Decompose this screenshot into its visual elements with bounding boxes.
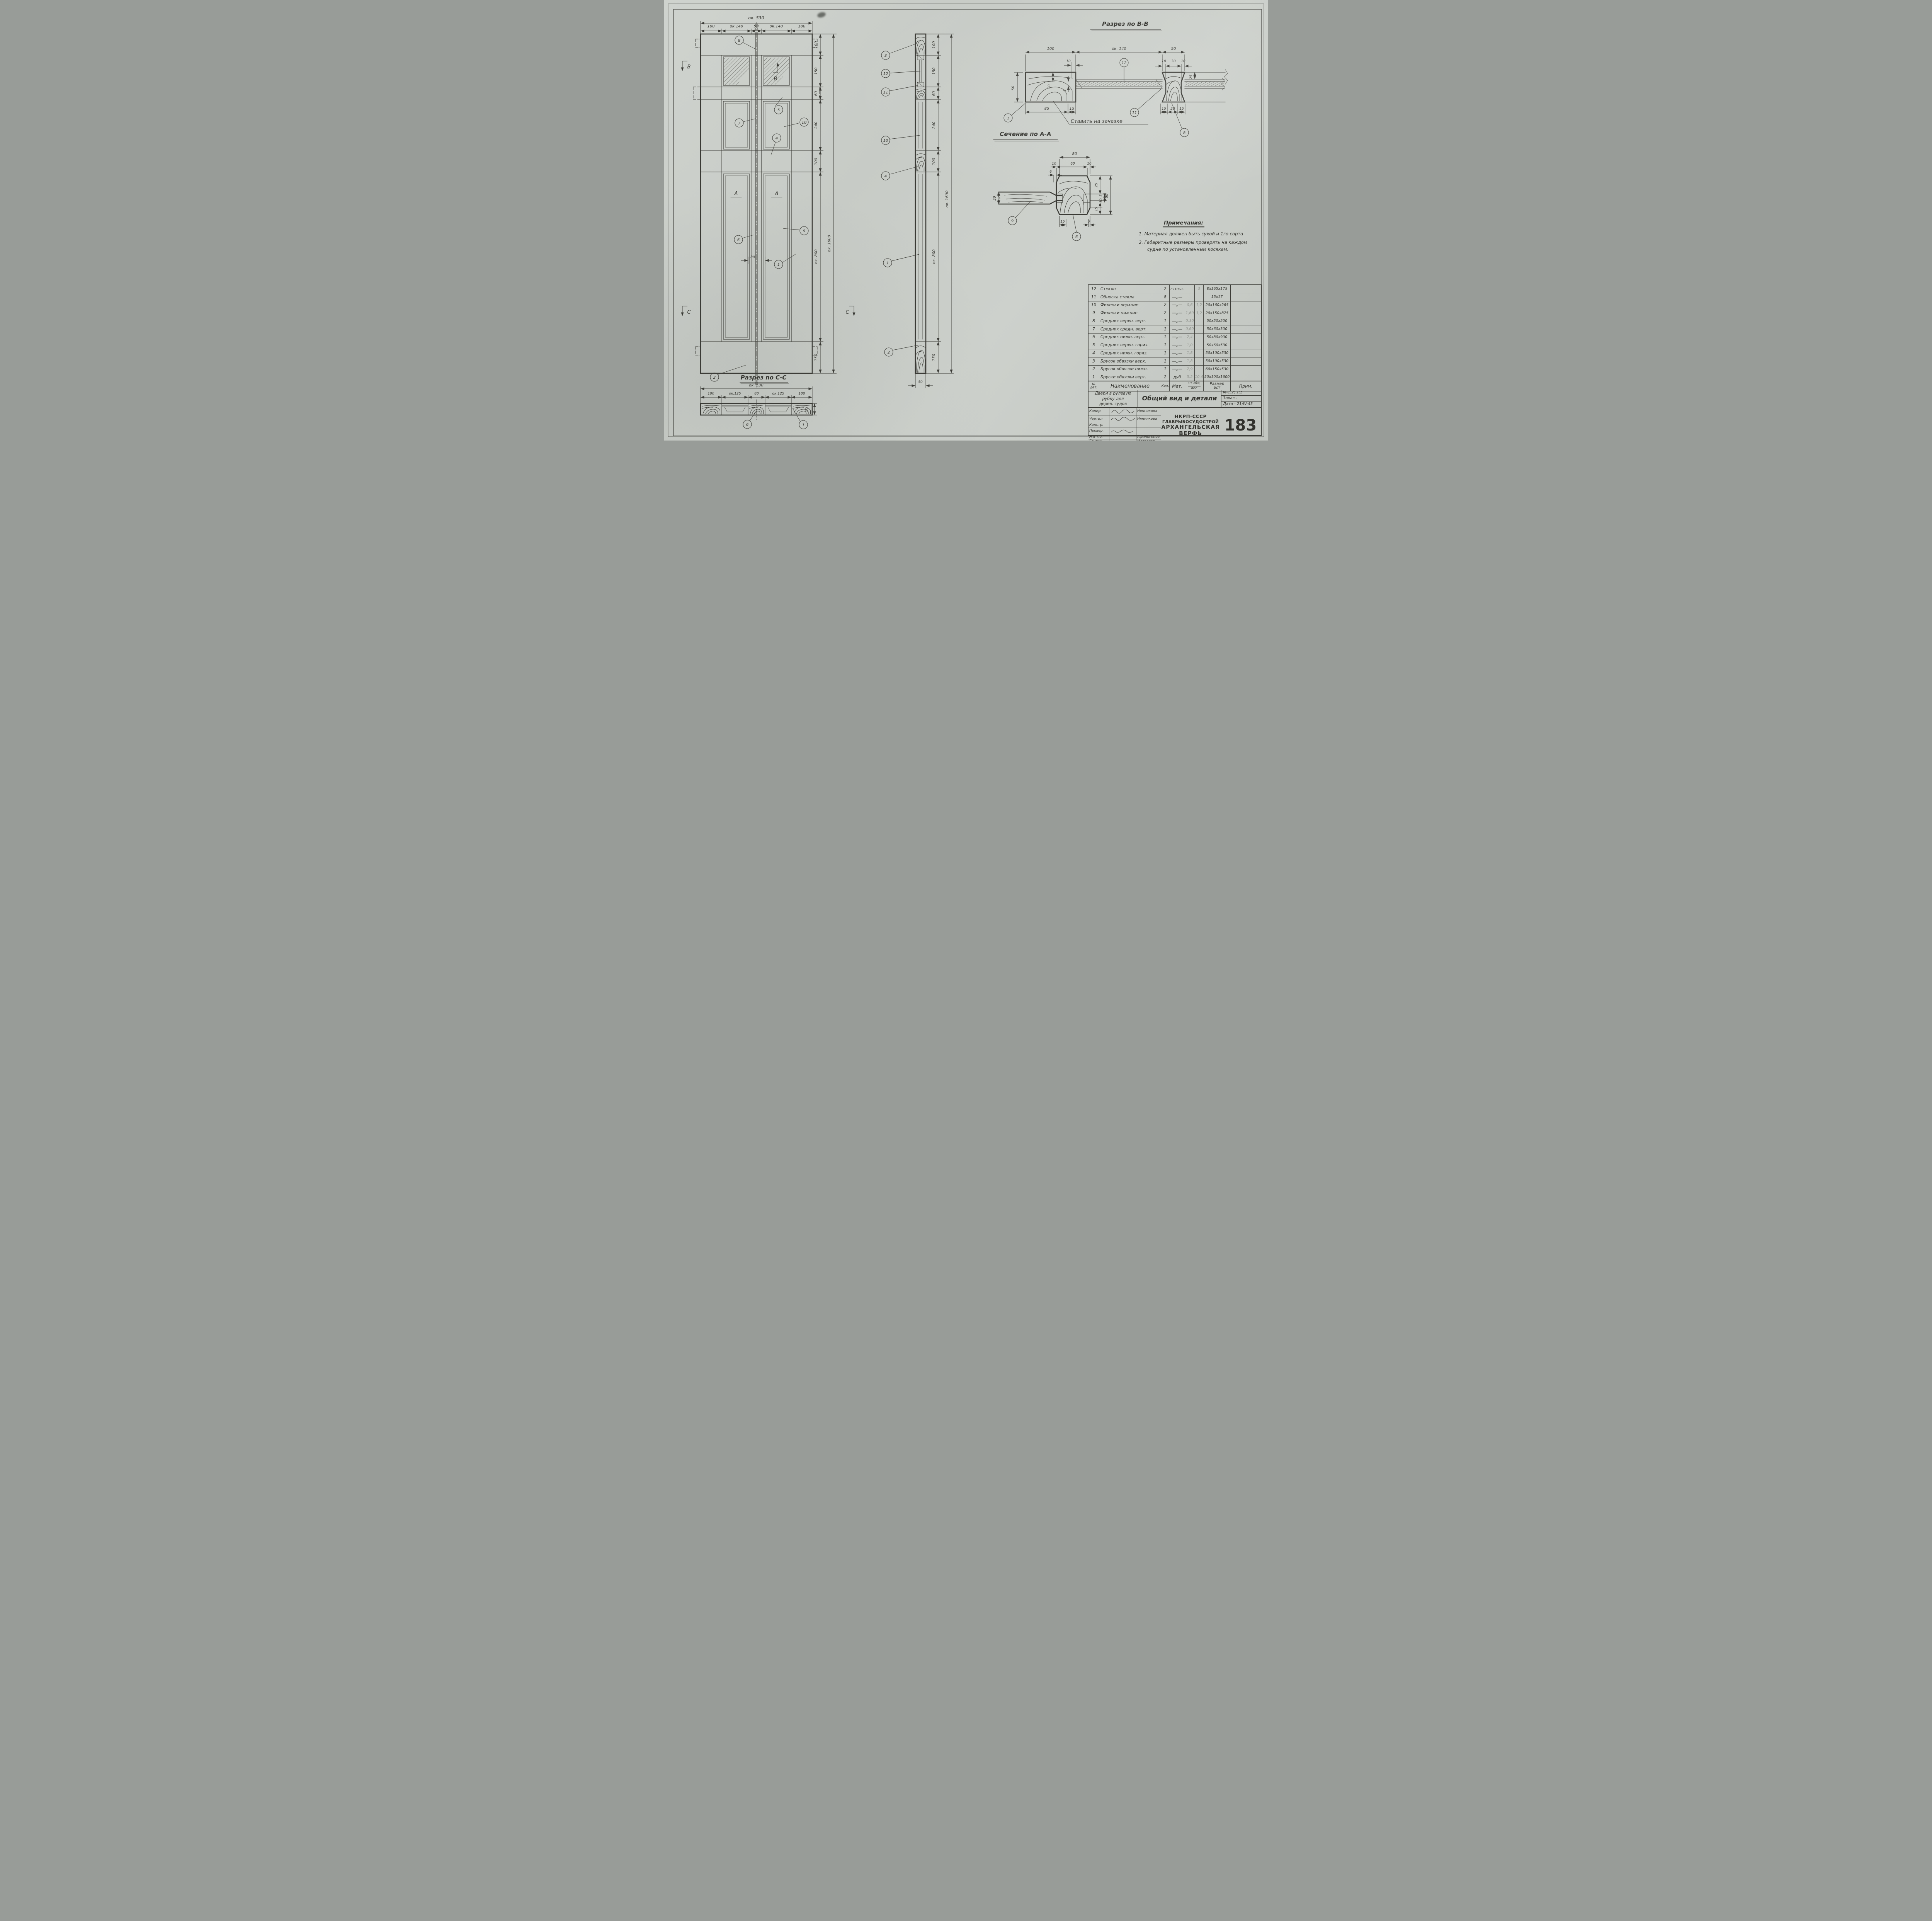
svg-text:15: 15 bbox=[1060, 220, 1065, 224]
table-cell: 2 bbox=[1088, 366, 1099, 373]
notes-heading: Примечания: bbox=[1163, 220, 1204, 228]
note-line: 2. Габаритные размеры проверять на каждо… bbox=[1139, 240, 1268, 245]
table-cell: Средник верхн. верт. bbox=[1099, 317, 1161, 325]
table-cell bbox=[1231, 285, 1261, 293]
signature-scribble bbox=[1109, 427, 1136, 435]
svg-text:10: 10 bbox=[883, 139, 888, 143]
svg-text:100: 100 bbox=[932, 41, 936, 48]
svg-text:80: 80 bbox=[750, 255, 755, 259]
signature-role: Констр. bbox=[1088, 423, 1109, 427]
svg-text:В: В bbox=[774, 76, 777, 82]
table-row: 10 Филенки верхние 2 —„— 0,6 1,2 20х160х… bbox=[1088, 301, 1261, 310]
table-cell bbox=[1231, 357, 1261, 365]
table-cell: 50х60х530 bbox=[1204, 341, 1231, 349]
svg-text:ок.125: ок.125 bbox=[772, 392, 784, 396]
table-cell: Филенки нижние bbox=[1099, 309, 1161, 317]
svg-text:50: 50 bbox=[1171, 47, 1176, 51]
section-aa-view: Сечение по А-А 80 10 60 10 6 20 25 5 10 … bbox=[993, 131, 1112, 241]
table-cell: 8х165х175 bbox=[1204, 285, 1231, 293]
drawing-number: 183 bbox=[1220, 408, 1261, 441]
svg-text:6: 6 bbox=[746, 423, 748, 427]
section-aa-dimensions: 80 10 60 10 6 20 25 5 10 15 50 15 7 bbox=[993, 152, 1112, 227]
table-cell: 1,60 bbox=[1185, 309, 1195, 317]
table-cell: Средник средн. верт. bbox=[1099, 325, 1161, 333]
signature-role: Н-к т.о. bbox=[1088, 435, 1109, 439]
svg-text:ок.140: ок.140 bbox=[730, 24, 743, 29]
table-cell: 20х150х825 bbox=[1204, 309, 1231, 317]
svg-text:150: 150 bbox=[932, 67, 936, 75]
table-cell: —„— bbox=[1170, 317, 1185, 325]
svg-text:2: 2 bbox=[713, 376, 716, 380]
table-header-cell: Наименование bbox=[1099, 381, 1161, 391]
table-cell: 1 bbox=[1161, 366, 1170, 373]
date-label: Дата - 21/IV-43 bbox=[1221, 402, 1261, 407]
svg-text:5: 5 bbox=[777, 108, 780, 112]
section-aa-title: Сечение по А-А bbox=[1000, 131, 1051, 138]
table-cell: —„— bbox=[1170, 333, 1185, 341]
table-cell bbox=[1185, 285, 1195, 293]
table-cell: 12 bbox=[1088, 285, 1099, 293]
table-cell: Брусок обвязки нижн. bbox=[1099, 366, 1161, 373]
blueprint-page: А А В В С С ок. 530 100 ок.140 50 ок.140… bbox=[664, 0, 1268, 441]
table-header-cell: Мат. bbox=[1170, 381, 1185, 391]
svg-text:60: 60 bbox=[1070, 162, 1075, 166]
table-cell: 1 bbox=[1161, 341, 1170, 349]
table-cell: 50х100х1600 bbox=[1204, 373, 1231, 381]
section-mark-c-right: С bbox=[845, 306, 854, 316]
table-cell: 15х17 bbox=[1204, 293, 1231, 301]
table-header-cell: шт.общ. вес bbox=[1185, 381, 1204, 391]
table-cell: 2 bbox=[1161, 309, 1170, 317]
svg-text:25: 25 bbox=[1095, 183, 1099, 187]
table-cell: Филенки верхние bbox=[1099, 301, 1161, 309]
svg-text:4: 4 bbox=[884, 174, 887, 179]
signature-name bbox=[1136, 423, 1161, 427]
signature-scribble bbox=[1109, 439, 1136, 441]
table-cell: —„— bbox=[1170, 357, 1185, 365]
svg-text:6: 6 bbox=[1075, 235, 1078, 239]
table-row: 12 Стекло 2 стекл. 3 8х165х175 bbox=[1088, 285, 1261, 293]
sheet-title: Общий вид и детали bbox=[1138, 390, 1221, 407]
table-cell: Стекло bbox=[1099, 285, 1161, 293]
table-row: 11 Обноска стекла 8 —„— 15х17 bbox=[1088, 293, 1261, 301]
svg-text:8: 8 bbox=[738, 39, 740, 43]
svg-text:150: 150 bbox=[814, 354, 818, 361]
svg-text:10: 10 bbox=[1052, 162, 1056, 166]
signature-name: Нянникова bbox=[1136, 415, 1161, 423]
svg-text:12: 12 bbox=[883, 72, 888, 76]
svg-text:10: 10 bbox=[1162, 60, 1166, 63]
table-row: 4 Средник нижн. гориз. 1 —„— 1,8 50х100х… bbox=[1088, 349, 1261, 357]
signature-scribble bbox=[1109, 415, 1136, 423]
signature-role: Чертил bbox=[1088, 415, 1109, 423]
svg-text:1: 1 bbox=[802, 423, 804, 427]
svg-text:100: 100 bbox=[814, 41, 818, 48]
front-elevation-view: А А В В С С ок. 530 100 ок.140 50 ок.140… bbox=[682, 15, 854, 387]
table-cell: 2 bbox=[1161, 285, 1170, 293]
svg-text:240: 240 bbox=[814, 121, 818, 129]
table-cell bbox=[1231, 366, 1261, 373]
svg-text:100: 100 bbox=[798, 392, 805, 396]
table-cell: Средник верхн. гориз. bbox=[1099, 341, 1161, 349]
table-cell: 0,30 bbox=[1185, 317, 1195, 325]
svg-text:1: 1 bbox=[777, 263, 780, 267]
svg-text:10: 10 bbox=[1181, 60, 1185, 63]
table-cell: 1 bbox=[1088, 373, 1099, 381]
signature-role: Гл.инж. bbox=[1088, 439, 1109, 441]
svg-text:80: 80 bbox=[754, 392, 759, 396]
svg-text:100: 100 bbox=[707, 24, 714, 29]
table-cell: 10 bbox=[1088, 301, 1099, 309]
table-cell: 5 bbox=[1088, 341, 1099, 349]
svg-text:3: 3 bbox=[884, 54, 887, 58]
table-cell: 50х100х530 bbox=[1204, 357, 1231, 365]
table-cell: 8 bbox=[1088, 317, 1099, 325]
front-elevation-callouts: 8 5 7 10 4 6 9 1 2 bbox=[710, 36, 808, 381]
table-cell bbox=[1195, 325, 1204, 333]
table-cell bbox=[1195, 341, 1204, 349]
svg-text:12: 12 bbox=[1122, 61, 1127, 65]
svg-text:11: 11 bbox=[1132, 111, 1137, 115]
svg-text:С: С bbox=[687, 310, 691, 315]
svg-text:7: 7 bbox=[1088, 220, 1090, 224]
table-cell: 0,60 bbox=[1185, 325, 1195, 333]
table-cell: 1,0 bbox=[1185, 341, 1195, 349]
signature-row: Провер. bbox=[1088, 427, 1161, 435]
table-header-cell: Прим. bbox=[1231, 381, 1261, 391]
svg-text:80: 80 bbox=[1072, 152, 1077, 156]
signature-scribble bbox=[1109, 408, 1136, 415]
table-cell bbox=[1231, 325, 1261, 333]
svg-text:ок. 800: ок. 800 bbox=[932, 249, 936, 264]
table-cell bbox=[1231, 349, 1261, 357]
svg-text:ок. 1600: ок. 1600 bbox=[827, 235, 832, 252]
sheet-meta: М-1:2; 1:5 Заказ - Дата - 21/IV-43 bbox=[1221, 390, 1261, 407]
table-cell: 2,4 bbox=[1185, 333, 1195, 341]
table-cell: 1 bbox=[1161, 317, 1170, 325]
svg-text:2: 2 bbox=[888, 351, 890, 355]
svg-text:9: 9 bbox=[1011, 219, 1014, 223]
svg-text:ок. 140: ок. 140 bbox=[1112, 47, 1126, 51]
table-cell bbox=[1195, 349, 1204, 357]
glass-pane-hatching bbox=[723, 57, 789, 85]
table-cell: 1 bbox=[1161, 349, 1170, 357]
table-cell: 1 bbox=[1161, 325, 1170, 333]
table-cell: дуб bbox=[1170, 373, 1185, 381]
svg-text:1: 1 bbox=[1007, 116, 1009, 121]
table-cell bbox=[1195, 366, 1204, 373]
table-row: 7 Средник средн. верт. 1 —„— 0,60 50х60х… bbox=[1088, 325, 1261, 333]
svg-text:4: 4 bbox=[776, 136, 778, 141]
table-cell: Брусок обвязки верх. bbox=[1099, 357, 1161, 365]
table-header-cell: №дет. bbox=[1088, 381, 1099, 391]
svg-text:ок.140: ок.140 bbox=[770, 24, 783, 29]
table-cell: 3,2 bbox=[1195, 309, 1204, 317]
svg-text:60: 60 bbox=[932, 91, 936, 96]
table-cell: —„— bbox=[1170, 309, 1185, 317]
svg-text:ок. 530: ок. 530 bbox=[749, 383, 764, 388]
svg-text:50: 50 bbox=[918, 380, 923, 384]
table-row: 1 Бруски обвязки верт. 2 дуб 5,2 10,4 50… bbox=[1088, 373, 1261, 381]
svg-text:6: 6 bbox=[737, 238, 740, 242]
table-cell: —„— bbox=[1170, 349, 1185, 357]
svg-text:10: 10 bbox=[802, 121, 807, 125]
table-cell: Средник нижн. верт. bbox=[1099, 333, 1161, 341]
table-row: 8 Средник верхн. верт. 1 —„— 0,30 50х50х… bbox=[1088, 317, 1261, 325]
svg-text:150: 150 bbox=[932, 354, 936, 361]
svg-text:85: 85 bbox=[1044, 107, 1049, 111]
svg-text:100: 100 bbox=[707, 392, 714, 396]
svg-text:15: 15 bbox=[1179, 107, 1184, 111]
signature-name bbox=[1136, 427, 1161, 435]
section-bb-view: Разрез по В-В 100 ок. 140 50 10 10 30 10… bbox=[1004, 20, 1228, 137]
scale-label: М-1:2; 1:5 bbox=[1221, 390, 1261, 396]
table-cell bbox=[1185, 293, 1195, 301]
table-cell bbox=[1195, 293, 1204, 301]
signature-name: Матросов bbox=[1136, 439, 1161, 441]
svg-text:В: В bbox=[687, 64, 691, 70]
svg-text:7: 7 bbox=[738, 121, 741, 126]
section-mark-c-left: С bbox=[682, 306, 691, 316]
table-cell bbox=[1231, 293, 1261, 301]
note-line: 1. Материал должен быть сухой и 1го сорт… bbox=[1139, 231, 1268, 237]
table-cell: 1 bbox=[1161, 333, 1170, 341]
svg-text:ок. 800: ок. 800 bbox=[814, 249, 818, 264]
svg-text:ок.125: ок.125 bbox=[729, 392, 741, 396]
table-cell: 50х50х200 bbox=[1204, 317, 1231, 325]
signature-row: Чертил Нянникова bbox=[1088, 415, 1161, 423]
notes-block: Примечания: 1. Материал должен быть сухо… bbox=[1139, 219, 1268, 252]
svg-text:60: 60 bbox=[814, 91, 818, 96]
signature-scribble bbox=[1109, 423, 1136, 427]
table-cell: 5,2 bbox=[1185, 373, 1195, 381]
section-cc-view: Разрез по С-С ок. 530 100 ок.125 80 ок.1… bbox=[701, 374, 817, 429]
order-label: Заказ - bbox=[1221, 396, 1261, 402]
table-cell bbox=[1195, 317, 1204, 325]
table-cell bbox=[1195, 357, 1204, 365]
section-bb-title: Разрез по В-В bbox=[1102, 20, 1148, 27]
table-cell: —„— bbox=[1170, 293, 1185, 301]
table-cell: 10,4 bbox=[1195, 373, 1204, 381]
svg-text:50: 50 bbox=[754, 24, 759, 29]
table-cell: 1 bbox=[1161, 357, 1170, 365]
signature-scribble bbox=[1109, 435, 1136, 439]
table-cell bbox=[1231, 341, 1261, 349]
table-cell: 0,6 bbox=[1185, 301, 1195, 309]
table-cell: Средник нижн. гориз. bbox=[1099, 349, 1161, 357]
svg-text:10: 10 bbox=[1066, 60, 1071, 63]
svg-text:ок. 530: ок. 530 bbox=[748, 15, 764, 20]
svg-text:15: 15 bbox=[1095, 207, 1099, 211]
svg-text:ок. 1600: ок. 1600 bbox=[945, 191, 949, 208]
table-row: 6 Средник нижн. верт. 1 —„— 2,4 50х80х90… bbox=[1088, 333, 1261, 342]
svg-text:20: 20 bbox=[1048, 84, 1051, 89]
table-row: 2 Брусок обвязки нижн. 1 —„— 2,9 60х150х… bbox=[1088, 366, 1261, 374]
table-cell: 50х100х530 bbox=[1204, 349, 1231, 357]
table-cell: 1,8 bbox=[1185, 349, 1195, 357]
table-cell: 3 bbox=[1088, 357, 1099, 365]
table-header-row: №дет. Наименование Кол. Мат. шт.общ. вес… bbox=[1088, 381, 1261, 391]
side-section-view: 3 12 11 10 4 1 2 100 150 60 240 100 ок. … bbox=[881, 34, 954, 388]
panel-label-a: А bbox=[734, 191, 738, 197]
title-block: Двери в рулевую рубку для дерев. судов О… bbox=[1088, 390, 1262, 436]
table-cell: 7 bbox=[1088, 325, 1099, 333]
table-row: 3 Брусок обвязки верх. 1 —„— 1,8 50х100х… bbox=[1088, 357, 1261, 366]
svg-text:100: 100 bbox=[932, 158, 936, 165]
note-line: судне по установленным косякам. bbox=[1147, 247, 1268, 252]
table-cell: 60х150х530 bbox=[1204, 366, 1231, 373]
svg-text:5: 5 bbox=[1099, 194, 1103, 197]
svg-text:8: 8 bbox=[1183, 131, 1185, 135]
signature-table: Копир. Нянникова Чертил Нянникова Констр… bbox=[1088, 408, 1161, 441]
organization-block: НКРП-СССР ГЛАВРЫБОСУДОСТРОЙ АРХАНГЕЛЬСКА… bbox=[1161, 408, 1220, 441]
svg-text:30: 30 bbox=[1171, 60, 1176, 63]
svg-text:11: 11 bbox=[883, 90, 888, 95]
section-mark-b-left: В bbox=[682, 61, 691, 71]
signature-row: Копир. Нянникова bbox=[1088, 408, 1161, 415]
svg-text:1: 1 bbox=[886, 261, 889, 265]
table-cell: 1,2 bbox=[1195, 301, 1204, 309]
table-cell: 8 bbox=[1161, 293, 1170, 301]
table-row: 5 Средник верхн. гориз. 1 —„— 1,0 50х60х… bbox=[1088, 341, 1261, 349]
table-cell: 20х160х265 bbox=[1204, 301, 1231, 309]
table-cell: Бруски обвязки верт. bbox=[1099, 373, 1161, 381]
svg-text:240: 240 bbox=[932, 121, 936, 129]
table-cell: —„— bbox=[1170, 301, 1185, 309]
table-cell: 11 bbox=[1088, 293, 1099, 301]
table-cell: —„— bbox=[1170, 366, 1185, 373]
svg-text:25: 25 bbox=[1189, 75, 1193, 79]
table-cell: 2 bbox=[1161, 373, 1170, 381]
svg-text:50: 50 bbox=[1105, 194, 1109, 198]
svg-text:20: 20 bbox=[1170, 107, 1175, 111]
side-view-callouts: 3 12 11 10 4 1 2 bbox=[881, 43, 920, 356]
section-cc-title: Разрез по С-С bbox=[741, 374, 787, 381]
project-name: Двери в рулевую рубку для дерев. судов bbox=[1088, 390, 1138, 407]
svg-text:10: 10 bbox=[1087, 162, 1092, 166]
table-cell: 50х80х900 bbox=[1204, 333, 1231, 341]
table-cell: 3 bbox=[1195, 285, 1204, 293]
table-header-cell: Размервст bbox=[1204, 381, 1231, 391]
table-row: 9 Филенки нижние 2 —„— 1,60 3,2 20х150х8… bbox=[1088, 309, 1261, 317]
table-cell: 9 bbox=[1088, 309, 1099, 317]
svg-text:Ставить на зачазке: Ставить на зачазке bbox=[1071, 119, 1122, 124]
svg-text:100: 100 bbox=[814, 158, 818, 165]
svg-text:100: 100 bbox=[798, 24, 805, 29]
table-cell: —„— bbox=[1170, 341, 1185, 349]
parts-table: 12 Стекло 2 стекл. 3 8х165х175 11 Обноск… bbox=[1088, 284, 1262, 391]
table-header-cell: Кол. bbox=[1161, 381, 1170, 391]
svg-text:С: С bbox=[845, 310, 849, 315]
table-cell bbox=[1195, 333, 1204, 341]
svg-text:20: 20 bbox=[993, 196, 997, 201]
svg-text:8: 8 bbox=[1063, 89, 1067, 92]
svg-text:15: 15 bbox=[1162, 107, 1166, 111]
table-cell bbox=[1231, 333, 1261, 341]
panel-label-a: А bbox=[775, 191, 779, 197]
signature-role: Провер. bbox=[1088, 427, 1109, 435]
svg-text:9: 9 bbox=[803, 229, 805, 233]
table-cell bbox=[1231, 309, 1261, 317]
table-cell: 6 bbox=[1088, 333, 1099, 341]
table-cell bbox=[1231, 301, 1261, 309]
svg-text:15: 15 bbox=[1070, 107, 1075, 111]
table-cell: 50х60х300 bbox=[1204, 325, 1231, 333]
table-cell: 2,9 bbox=[1185, 366, 1195, 373]
table-cell: 1,8 bbox=[1185, 357, 1195, 365]
table-cell: Обноска стекла bbox=[1099, 293, 1161, 301]
table-cell: 4 bbox=[1088, 349, 1099, 357]
signature-row: Н-к т.о. Афиногенов bbox=[1088, 435, 1161, 439]
svg-text:150: 150 bbox=[814, 67, 818, 75]
signature-name: Нянникова bbox=[1136, 408, 1161, 415]
table-cell bbox=[1231, 373, 1261, 381]
svg-text:10: 10 bbox=[1099, 198, 1103, 203]
section-bb-dimensions: 100 ок. 140 50 10 10 30 10 50 20 8 25 85… bbox=[1011, 47, 1195, 114]
svg-text:100: 100 bbox=[1047, 47, 1054, 51]
signature-name: Афиногенов bbox=[1136, 435, 1161, 439]
table-cell: 2 bbox=[1161, 301, 1170, 309]
table-cell: стекл. bbox=[1170, 285, 1185, 293]
signature-row: Гл.инж. Матросов bbox=[1088, 439, 1161, 441]
signature-role: Копир. bbox=[1088, 408, 1109, 415]
table-cell: —„— bbox=[1170, 325, 1185, 333]
side-view-dimensions: 100 150 60 240 100 ок. 800 150 ок. 1600 … bbox=[908, 34, 954, 388]
table-cell bbox=[1231, 317, 1261, 325]
signature-row: Констр. bbox=[1088, 423, 1161, 427]
svg-text:6: 6 bbox=[1049, 170, 1052, 174]
svg-text:50: 50 bbox=[1011, 86, 1015, 91]
